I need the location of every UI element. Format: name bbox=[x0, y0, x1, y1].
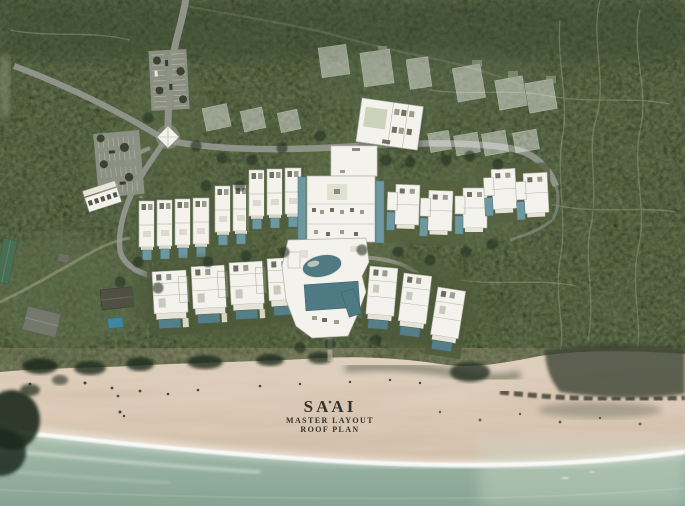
garden-villas-row-a bbox=[136, 195, 212, 262]
entrance-parking-lot bbox=[148, 49, 189, 111]
spa-building bbox=[355, 98, 426, 154]
plan-subtitle-line2: ROOF PLAN bbox=[286, 425, 374, 434]
west-lap-pool bbox=[298, 177, 306, 239]
east-lap-pool bbox=[376, 181, 384, 243]
plan-title-block: SAAI MASTER LAYOUT ROOF PLAN bbox=[286, 398, 374, 434]
project-name: SAAI bbox=[286, 398, 374, 416]
plan-subtitle-line1: MASTER LAYOUT bbox=[286, 416, 374, 425]
garden-villa bbox=[190, 195, 212, 259]
garden-villas-row-c bbox=[246, 165, 304, 231]
arrival-pavilion bbox=[156, 125, 180, 149]
aerial-map: SAAI MASTER LAYOUT ROOF PLAN bbox=[0, 0, 685, 506]
